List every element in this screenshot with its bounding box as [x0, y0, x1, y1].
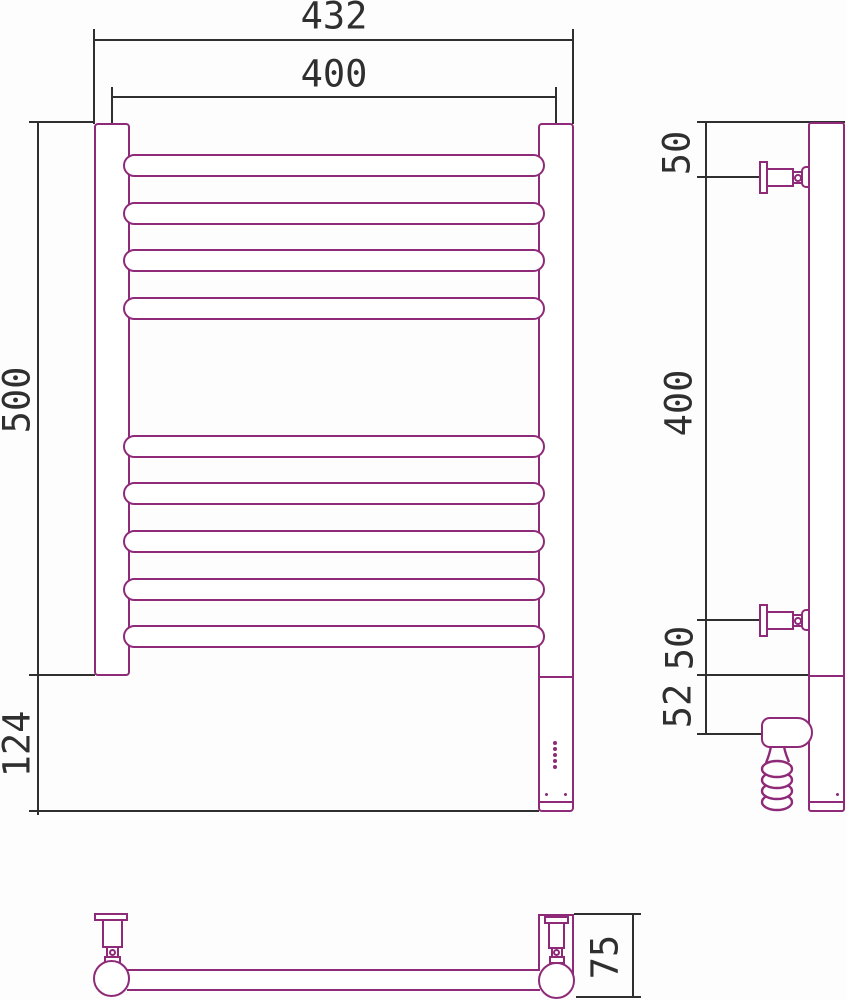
housing-screw	[564, 793, 567, 796]
indicator-led	[553, 765, 557, 769]
side-profile-joint	[809, 675, 844, 677]
dim-75-ext-bottom	[576, 996, 641, 998]
dim-432-label: 432	[301, 0, 368, 35]
indicator-led	[553, 759, 557, 763]
indicator-led	[553, 753, 557, 757]
rail	[123, 482, 545, 505]
dim-400-ext-right	[555, 87, 557, 126]
plan-left-body	[102, 919, 123, 948]
dim-432-line	[93, 39, 574, 41]
indicator-led	[553, 747, 557, 751]
rail	[123, 530, 545, 553]
right-post-with-heater-housing	[538, 123, 574, 812]
lower-bracket-screw	[794, 617, 802, 625]
technical-drawing-canvas: 432 400 500 124	[0, 0, 847, 1000]
dim-500-label: 500	[0, 367, 36, 434]
plan-right-post-circle	[538, 962, 575, 999]
plan-rail-bar	[127, 969, 540, 991]
coiled-cable	[757, 744, 801, 814]
side-dim-52-label: 52	[660, 684, 697, 729]
lower-bracket-arm	[766, 611, 794, 630]
rail	[123, 154, 545, 177]
dim-400-ext-left	[111, 87, 113, 126]
rail	[123, 578, 545, 601]
dim-124-ext-bottom	[29, 810, 539, 812]
housing-top-joint	[539, 676, 573, 678]
dim-400-line	[111, 96, 557, 98]
side-profile-cap-line	[809, 801, 844, 803]
rail	[123, 625, 545, 648]
dim-400-label: 400	[301, 56, 368, 93]
housing-bottom-cap-line	[539, 801, 573, 803]
dim-75-line	[632, 914, 634, 998]
dim-500-ext-bottom	[29, 674, 95, 676]
plan-left-post-circle	[93, 960, 130, 997]
plan-right-body	[548, 922, 565, 949]
side-dim-line	[705, 121, 707, 735]
indicator-led	[553, 741, 557, 745]
dim-124-label: 124	[0, 711, 36, 778]
side-ext-heater	[697, 733, 761, 735]
plan-right-screw	[553, 949, 560, 956]
side-housing-screw	[836, 793, 839, 796]
dim-75-label: 75	[587, 935, 624, 980]
dim-500-ext-top	[29, 121, 95, 123]
dim-432-ext-right	[572, 29, 574, 124]
housing-screw	[545, 793, 548, 796]
rail	[123, 249, 545, 272]
side-dim-50-top-label: 50	[659, 131, 696, 176]
upper-bracket-arm	[766, 168, 794, 187]
rail	[123, 202, 545, 225]
rail	[123, 297, 545, 320]
side-dim-50-bottom-label: 50	[662, 626, 699, 671]
dim-75-ext-top	[574, 913, 641, 915]
side-dim-400-label: 400	[661, 370, 698, 437]
upper-bracket-screw	[794, 174, 802, 182]
side-ext-lower-bracket	[697, 619, 759, 621]
dim-432-ext-left	[93, 29, 95, 124]
plan-left-screw	[109, 949, 116, 956]
rail	[123, 435, 545, 458]
side-ext-upper-bracket	[697, 176, 759, 178]
side-profile	[808, 122, 845, 812]
